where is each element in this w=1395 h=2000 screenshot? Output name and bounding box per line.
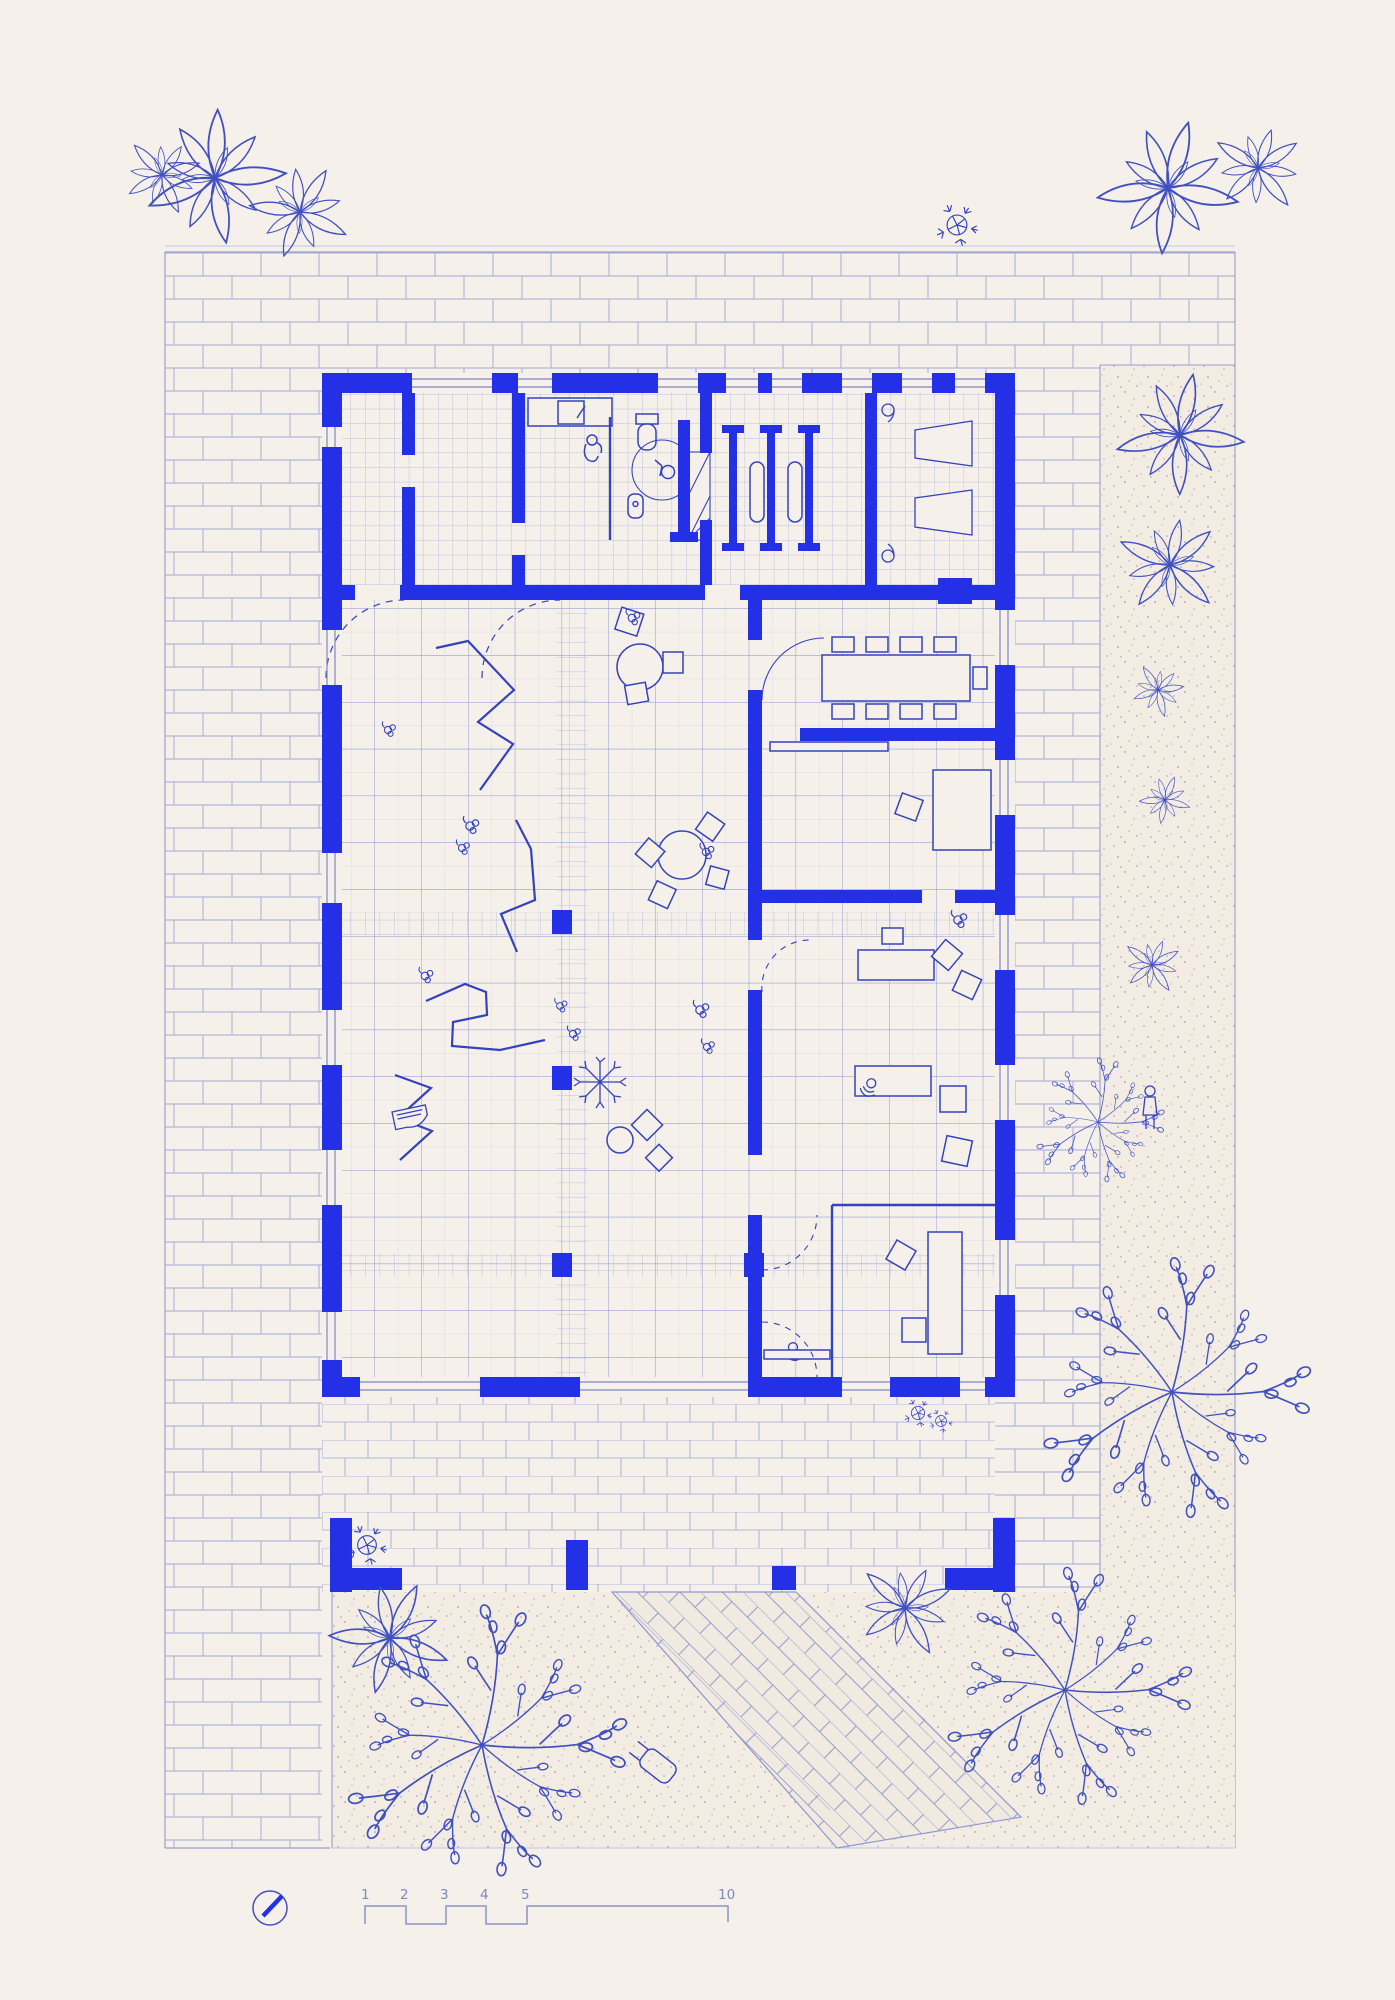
porch-floor [322,1397,995,1592]
plant-leafy-top-right-1 [1085,104,1255,270]
plant-leafy-top-left-3 [113,125,213,227]
plant-leafy-top-right-2 [1196,104,1323,232]
plant-sprout-top [937,205,978,246]
legend: 1 2 3 4 5 10 [253,1887,735,1925]
stool-round [607,1127,633,1153]
site-plan-sheet: 1 2 3 4 5 10 [0,0,1395,2000]
plaza-top-band [165,252,1235,373]
scale-bar: 1 2 3 4 5 10 [361,1887,735,1924]
scale-label-10: 10 [718,1887,735,1903]
scale-label-5: 5 [521,1887,530,1903]
plant-leafy-top-left-1 [146,110,286,244]
north-arrow-icon [253,1891,287,1925]
service-strip-floor [342,393,995,585]
exterior-wall-bottom [322,1377,1015,1397]
plaza-right-strip [1015,373,1100,1592]
scale-label-1: 1 [361,1887,370,1903]
floor-plan-drawing: 1 2 3 4 5 10 [0,0,1395,2000]
scale-label-3: 3 [440,1887,449,1903]
exterior-wall-top [322,373,1015,393]
exterior-wall-left [322,373,342,1397]
plaza-left-strip [165,252,322,1848]
scale-label-2: 2 [400,1887,409,1903]
exterior-wall-right [995,373,1015,1397]
building-floors [342,393,995,1377]
scale-label-4: 4 [480,1887,489,1903]
sink-counter [528,398,612,426]
